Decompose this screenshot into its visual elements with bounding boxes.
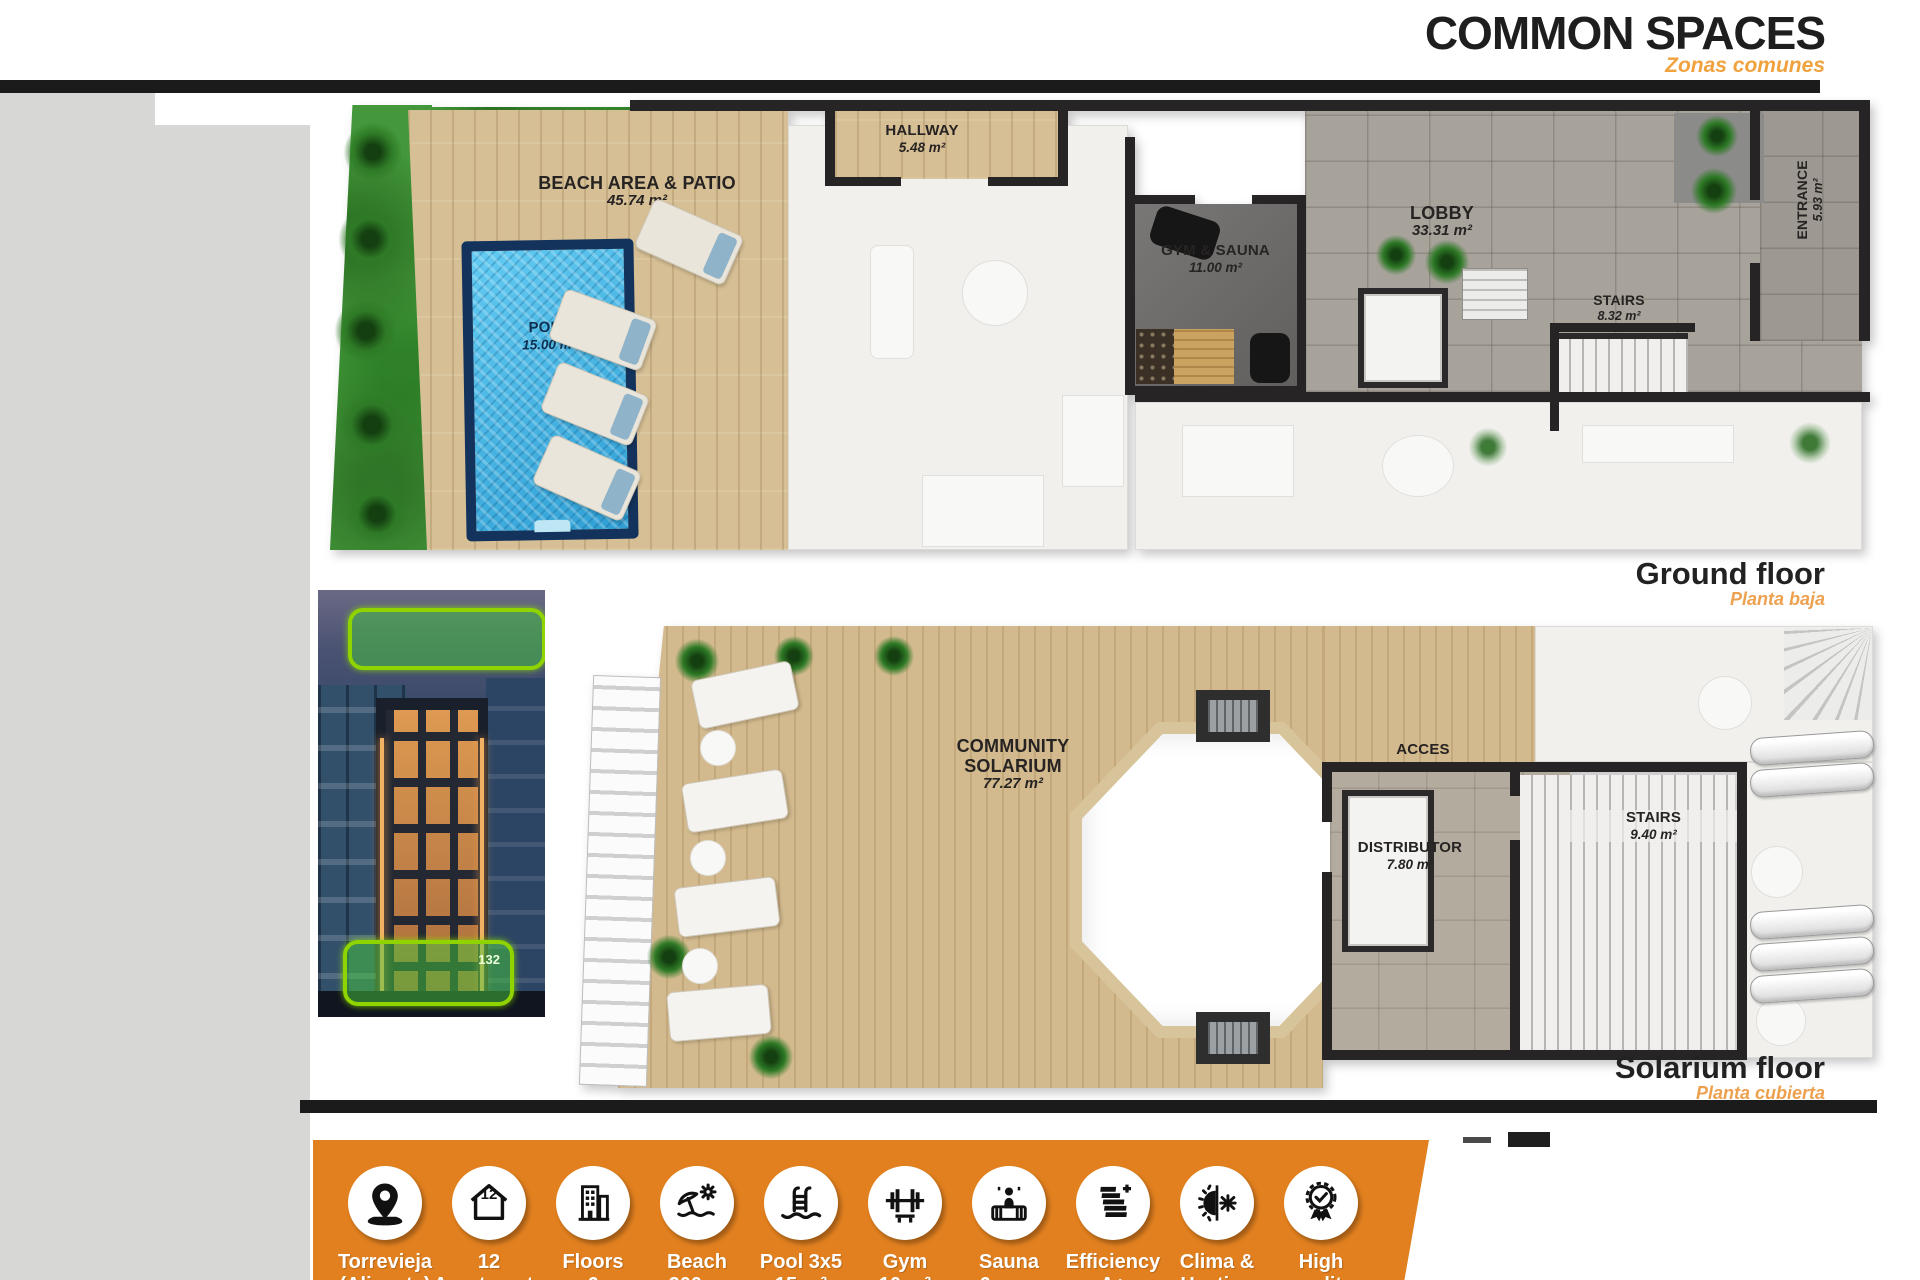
ground-floor-caption-es: Planta baja	[1345, 589, 1825, 610]
room-label-acces: ACCES	[1368, 742, 1478, 759]
wall	[1322, 762, 1747, 772]
wall	[1058, 100, 1068, 184]
palm-tree-icon	[332, 111, 414, 193]
logo-fragment	[1463, 1137, 1491, 1143]
plant-faded-icon	[1462, 421, 1514, 473]
feature-quality: High quality	[1269, 1166, 1373, 1280]
entrance-plant-icon	[1688, 107, 1746, 165]
side-table	[700, 730, 736, 766]
feature-gym: Gym 10 m²	[853, 1166, 957, 1280]
elevator	[1358, 288, 1448, 388]
wall	[1322, 762, 1332, 822]
wall	[988, 177, 1068, 186]
header-divider-bar	[0, 80, 1820, 93]
ground-highlight-box: 132	[343, 940, 514, 1006]
table-faded	[962, 260, 1028, 326]
features-bar: Torrevieja (Alicante) 12 12 Apartments F…	[313, 1140, 1429, 1280]
room-label-hallway: HALLWAY 5.48 m²	[842, 123, 1002, 155]
skylight-octagon	[1082, 734, 1360, 1026]
table-faded	[1382, 435, 1454, 497]
room-label-solarium: COMMUNITY SOLARIUM 77.27 m²	[928, 736, 1098, 793]
palm-tree-icon	[326, 379, 418, 471]
sidebar-gray-notch	[0, 93, 155, 127]
sidebar-gray-column	[0, 125, 310, 1280]
vent-grille	[1208, 700, 1258, 732]
solarium-caption-en: Solarium floor	[1345, 1050, 1825, 1086]
solarium-highlight-box	[348, 608, 545, 670]
bed-faded	[922, 475, 1044, 547]
terrace-table	[1698, 676, 1752, 730]
wall	[1125, 137, 1135, 395]
wall	[1510, 762, 1520, 796]
feature-efficiency: Efficiency A+	[1061, 1166, 1165, 1280]
entrance-plant-icon	[1682, 159, 1746, 223]
wall	[1125, 195, 1195, 204]
wall	[1859, 100, 1870, 341]
palm-tree-icon	[326, 195, 414, 283]
wall	[1737, 762, 1747, 1060]
ground-floor-caption: Ground floor Planta baja	[1345, 556, 1825, 610]
fan-stairs	[1784, 628, 1872, 720]
wall	[1550, 323, 1695, 332]
wall	[825, 100, 835, 184]
palm-tree-icon	[334, 471, 420, 557]
efficiency-icon	[1076, 1166, 1150, 1240]
terrace-table	[1751, 846, 1803, 898]
pool-step	[534, 520, 570, 533]
kitchen-faded	[1062, 395, 1124, 487]
gym-rack	[1250, 333, 1290, 383]
pergola-slats	[579, 675, 661, 1087]
page-subtitle: Zonas comunes	[1200, 54, 1825, 78]
room-label-stairs-solarium: STAIRS 9.40 m²	[1566, 810, 1741, 842]
sofa-faded	[870, 245, 914, 359]
roof-vent	[1196, 690, 1270, 742]
room-label-gym: GYM & SAUNA 11.00 m²	[1134, 243, 1297, 275]
solarium-floor-caption: Solarium floor Planta cubierta	[1345, 1050, 1825, 1104]
sun-lounger	[666, 984, 772, 1043]
quality-icon	[1284, 1166, 1358, 1240]
feature-floors: Floors 6	[541, 1166, 645, 1280]
roof-vent	[1196, 1012, 1270, 1064]
feature-beach: Beach 200 m	[645, 1166, 749, 1280]
room-label-stairs-ground: STAIRS 8.32 m²	[1544, 293, 1694, 323]
wall	[1322, 872, 1332, 1060]
wall	[1550, 323, 1559, 431]
building-icon	[556, 1166, 630, 1240]
page-title: COMMON SPACES	[1200, 6, 1825, 60]
gym-icon	[868, 1166, 942, 1240]
wall	[1135, 392, 1870, 402]
footer-divider-bar	[300, 1100, 1877, 1113]
house-count-icon: 12	[452, 1166, 526, 1240]
lobby-steps	[1462, 268, 1528, 320]
unit-badge: 132	[478, 952, 500, 967]
sauna-icon	[972, 1166, 1046, 1240]
terrace-table	[1756, 996, 1806, 1046]
feature-pool: Pool 3x5 15 m²	[749, 1166, 853, 1280]
kitchen-faded	[1582, 425, 1734, 463]
solarium-floor-plan: COMMUNITY SOLARIUM 77.27 m² ACCES DISTRI…	[608, 618, 1878, 1096]
bed-faded	[1182, 425, 1294, 497]
room-label-entrance: ENTRANCE 5.93 m²	[1795, 140, 1825, 260]
palm-tree-icon	[322, 287, 410, 375]
room-label-beach-area: BEACH AREA & PATIO 45.74 m²	[472, 173, 802, 210]
feature-sauna: Sauna 6 pers	[957, 1166, 1061, 1280]
ground-floor-caption-en: Ground floor	[1345, 556, 1825, 592]
wall	[1750, 263, 1760, 341]
climate-icon	[1180, 1166, 1254, 1240]
feature-apartments: 12 12 Apartments	[437, 1166, 541, 1280]
pool-ladder-icon	[764, 1166, 838, 1240]
wall	[1297, 195, 1306, 395]
wall	[1510, 840, 1520, 1060]
side-table	[682, 948, 718, 984]
feature-climate: Clima & Heating	[1165, 1166, 1269, 1280]
brochure-page: COMMON SPACES Zonas comunes BEACH AREA &…	[0, 0, 1920, 1280]
feature-location: Torrevieja (Alicante)	[333, 1166, 437, 1280]
side-table	[690, 840, 726, 876]
wall	[825, 177, 901, 186]
plant-faded-icon	[1782, 415, 1838, 471]
deck-plant-icon	[866, 628, 922, 684]
beach-icon	[660, 1166, 734, 1240]
building-photo: 132	[318, 590, 545, 1017]
ground-floor-plan: BEACH AREA & PATIO 45.74 m² POLL 15.00 m…	[322, 95, 1875, 552]
wall	[630, 100, 1870, 111]
room-label-distributor: DISTRIBUTOR 7.80 m²	[1320, 840, 1500, 872]
logo-fragment	[1508, 1132, 1550, 1147]
location-pin-icon	[348, 1166, 422, 1240]
wall	[1750, 100, 1760, 200]
sauna-stove	[1136, 329, 1174, 384]
vent-grille	[1208, 1022, 1258, 1054]
